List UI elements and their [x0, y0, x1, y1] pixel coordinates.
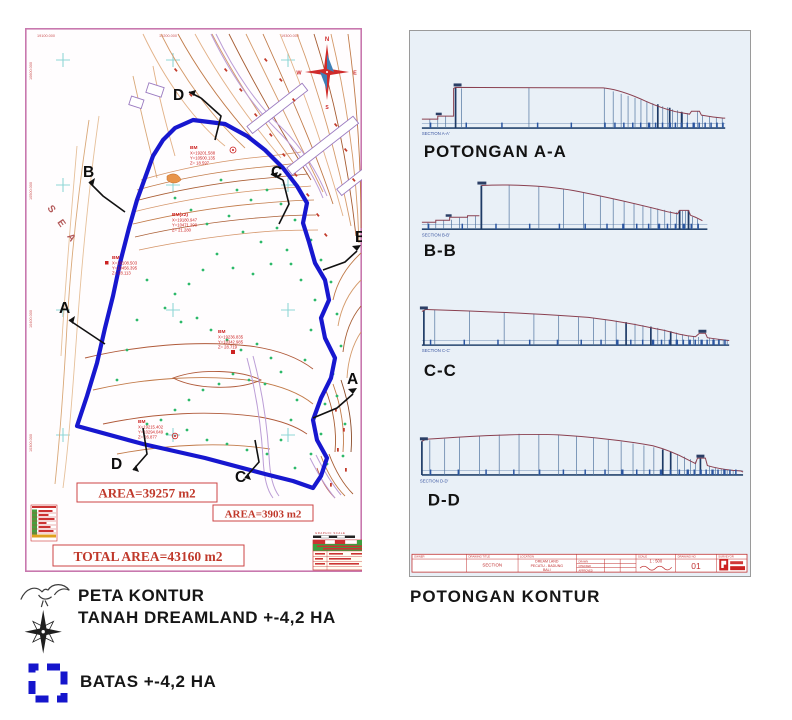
scanned-drawing-page: 19100.000 19200.000 19300.000 10600.000 …	[0, 0, 792, 720]
section-bb-drawing: SECTION B-B' B-B	[422, 182, 707, 260]
top-coord-3: 19300.000	[281, 34, 299, 38]
section-aa-sublabel: SECTION A-A'	[422, 131, 450, 136]
approval-row-approved: APPROVED	[579, 568, 593, 572]
bm3-z: Z= 28.113	[112, 271, 131, 276]
contour-map-panel: 19100.000 19200.000 19300.000 10600.000 …	[25, 28, 362, 572]
map-legend-table	[31, 505, 57, 541]
bird-compass-icon	[18, 580, 74, 662]
legend-title-line1: PETA KONTUR	[78, 586, 204, 606]
graphic-scale-bar	[313, 536, 355, 539]
bm4-z: Z= 28.719	[218, 345, 238, 350]
legend-title-line2: TANAH DREAMLAND +-4,2 HA	[78, 608, 336, 628]
sections-caption: POTONGAN KONTUR	[410, 587, 600, 607]
legend-boundary-label: BATAS +-4,2 HA	[80, 672, 216, 692]
dashed-square-icon	[26, 661, 70, 705]
section-letter-a-left: A	[59, 300, 70, 317]
section-letter-d-bottom: D	[111, 456, 122, 473]
section-letter-d-top: D	[173, 87, 184, 104]
compass-w-label: W	[296, 71, 302, 77]
drawing-no-value: 01	[691, 561, 701, 571]
area-label-2: AREA=3903 m2	[225, 509, 302, 521]
sections-svg: SECTION A-A' POTONGAN A-A SECTION B-	[410, 31, 749, 575]
bm5-z: Z= 26.877	[138, 435, 158, 440]
section-letter-a-right: A	[347, 371, 358, 388]
drawing-no-label: DRAWING NO	[678, 555, 697, 559]
section-dd-drawing: SECTION D-D' D-D	[420, 434, 743, 510]
graphic-scale-label: GRAPHIC SCALE	[315, 531, 346, 535]
section-cc-label: C-C	[424, 361, 457, 380]
compass-e-label: E	[353, 71, 357, 77]
contour-map-svg: 19100.000 19200.000 19300.000 10600.000 …	[25, 28, 362, 572]
section-dd-label: D-D	[428, 491, 461, 510]
area-label-1: AREA=39257 m2	[98, 486, 195, 501]
section-cc-sublabel: SECTION C-C'	[422, 348, 451, 353]
left-coord-2: 10500.000	[29, 182, 33, 200]
sections-sheet-panel: SECTION A-A' POTONGAN A-A SECTION B-	[409, 30, 751, 577]
left-coord-4: 10300.000	[29, 434, 33, 452]
section-letter-c-bottom: C	[235, 469, 246, 486]
section-aa-drawing: SECTION A-A' POTONGAN A-A	[422, 83, 725, 160]
section-bb-sublabel: SECTION B-B'	[422, 233, 450, 238]
location-line3: BALI	[543, 568, 551, 572]
section-bb-label: B-B	[424, 241, 457, 260]
compass-star-icon	[25, 610, 62, 654]
scale-value: 1 : 500	[649, 559, 662, 564]
top-coord-1: 19100.000	[37, 34, 55, 38]
total-area-label: TOTAL AREA=43160 m2	[74, 549, 223, 564]
drawing-title-label: DRAWING TITLE	[468, 555, 490, 559]
bm2-z: Z= 21.280	[172, 228, 192, 233]
section-letter-b-right: B	[355, 229, 362, 246]
section-aa-label: POTONGAN A-A	[424, 142, 567, 161]
drawing-title-value: SECTION	[482, 563, 502, 568]
section-letter-c-top: C	[271, 164, 282, 181]
scale-label: SCALE	[638, 555, 647, 559]
map-mini-titleblock: GRAPHIC SCALE	[313, 531, 362, 570]
section-dd-sublabel: SECTION D-D'	[420, 478, 449, 483]
bm1-z: Z= 18.597	[190, 161, 210, 166]
owner-label: OWNER	[414, 555, 425, 559]
left-coord-1: 10600.000	[29, 62, 33, 80]
location-label: LOCATION	[520, 555, 534, 559]
surveyor-label: SURVEYOR	[718, 555, 733, 559]
left-coord-3: 10400.000	[29, 310, 33, 328]
section-letter-b-left: B	[83, 164, 94, 181]
section-cc-drawing: SECTION C-C' C-C	[420, 306, 729, 379]
bird-icon	[21, 585, 69, 607]
sheet-title-block: OWNER DRAWING TITLE LOCATION SCALE DRAWI…	[412, 554, 747, 572]
approval-row-drawn: DRAWN	[579, 560, 589, 564]
approval-row-checked: CHECKED	[579, 564, 592, 568]
compass-n-label: N	[325, 37, 329, 43]
